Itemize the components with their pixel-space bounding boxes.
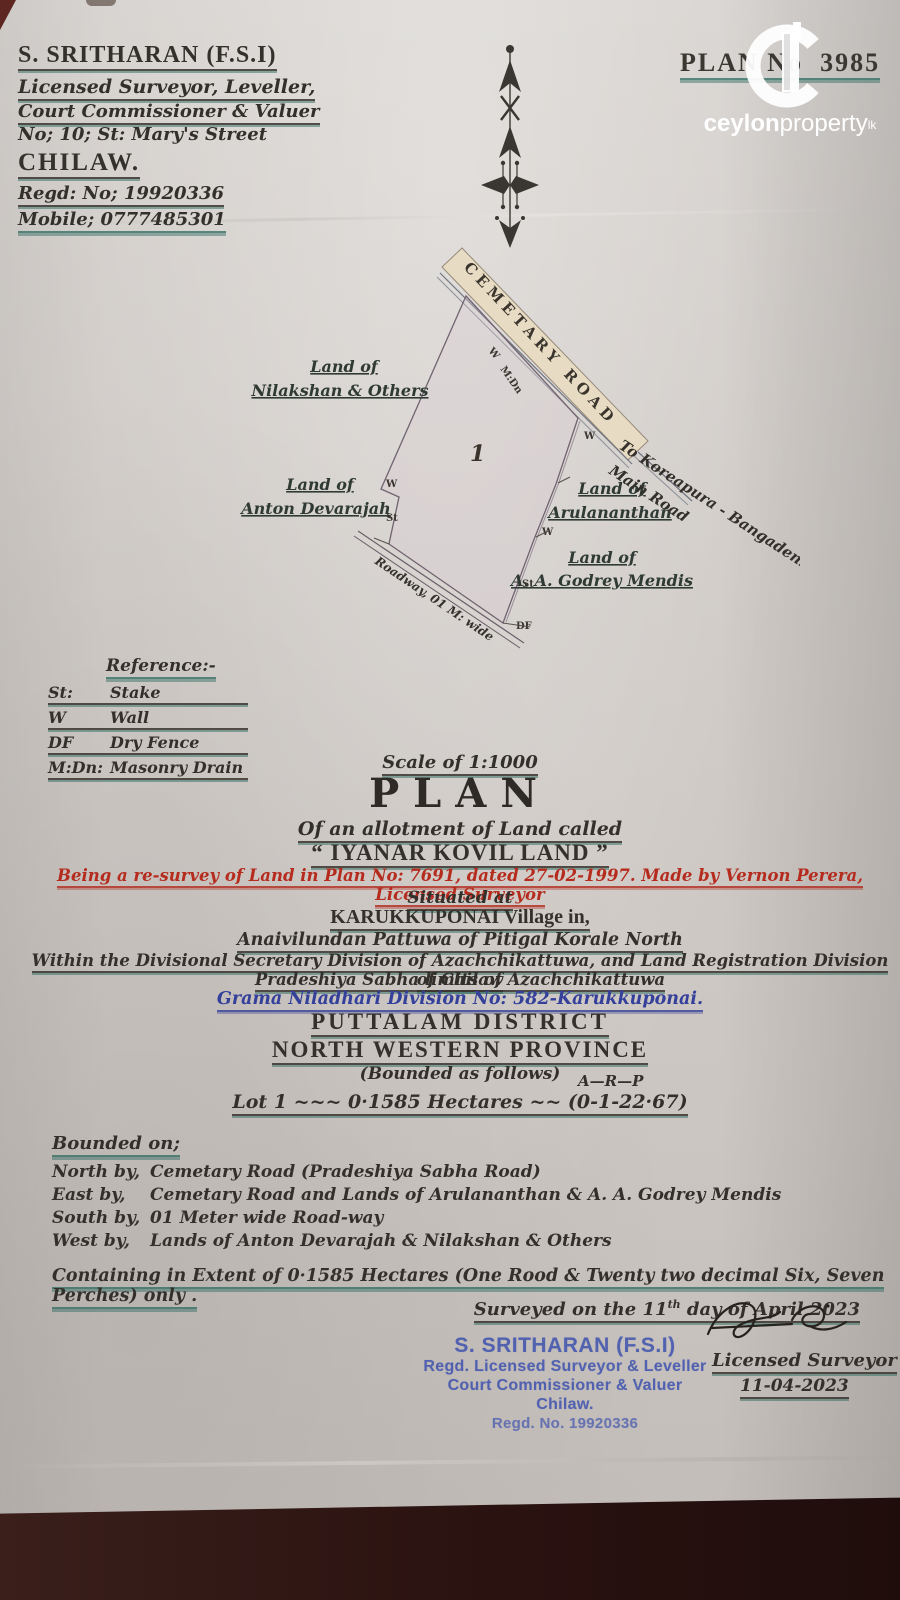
surveyor-address: No; 10; St: Mary's Street (18, 124, 267, 145)
stamp-line1: Regd. Licensed Surveyor & Leveller (410, 1357, 720, 1376)
signature-icon (700, 1292, 860, 1350)
scanned-survey-plan: S. SRITHARAN (F.S.I) Licensed Surveyor, … (0, 0, 900, 1600)
signature-date: 11-04-2023 (740, 1376, 849, 1399)
surveyor-stamp: S. SRITHARAN (F.S.I) Regd. Licensed Surv… (410, 1336, 720, 1433)
surveyor-commissioner-line: Court Commissioner & Valuer (18, 101, 320, 125)
watermark-logo: ceylonpropertylk (690, 18, 890, 138)
neighbor-w-line1: Land of (285, 475, 357, 494)
neighbor-se-line2: A. A. Godrey Mendis (509, 571, 693, 590)
province-line: NORTH WESTERN PROVINCE (272, 1037, 648, 1065)
bounded-side: West by, (52, 1231, 150, 1251)
mark-wall-notch: W (385, 479, 398, 490)
watermark-brand-bold: ceylon (704, 110, 780, 137)
mark-stake-left: St (386, 513, 398, 524)
district-line: PUTTALAM DISTRICT (311, 1009, 609, 1037)
mark-wall-corner: W (583, 431, 596, 442)
bounded-side: East by, (52, 1185, 150, 1205)
edge-mark (86, 0, 116, 6)
cadastral-drawing: CEMETARY ROAD Roadway, 01 M: wide 1 Land… (240, 245, 800, 675)
land-name: “ IYANAR KOVIL LAND ” (311, 840, 608, 868)
village-line: KARUKKUPONAI Village in, (330, 906, 589, 931)
ref-meaning: Stake (110, 683, 161, 702)
compass-rose-icon (477, 40, 543, 248)
ref-abbr: W (48, 708, 110, 727)
bounded-desc: Cemetary Road (Pradeshiya Sabha Road) (150, 1162, 541, 1182)
bounded-desc: Cemetary Road and Lands of Arulananthan … (150, 1185, 781, 1205)
stamp-line4: Regd. No. 19920336 (410, 1414, 720, 1433)
stamp-line2: Court Commissioner & Valuer (410, 1376, 720, 1395)
bounded-side: North by, (52, 1162, 150, 1182)
surveyor-mobile: Mobile; 0777485301 (18, 209, 226, 233)
surveyor-city: CHILAW. (18, 149, 140, 179)
neighbor-nw-line1: Land of (309, 357, 381, 376)
ref-meaning: Wall (110, 708, 149, 727)
ref-abbr: St: (48, 683, 110, 702)
watermark-building-icon (735, 18, 845, 110)
references-title: Reference:- (106, 656, 216, 679)
arp-header: A—R—P (578, 1072, 643, 1090)
bounded-row: South by,01 Meter wide Road-way (52, 1208, 383, 1228)
neighbor-w-line2: Anton Devarajah (240, 499, 391, 518)
watermark-tld: lk (868, 118, 877, 132)
surveyor-card: S. SRITHARAN (F.S.I) Licensed Surveyor, … (18, 42, 320, 230)
lot-number: 1 (470, 441, 485, 467)
bounded-row: East by,Cemetary Road and Lands of Arula… (52, 1185, 781, 1205)
watermark-brand-light: property (780, 110, 868, 137)
bounded-heading: Bounded on; (52, 1133, 180, 1157)
bounded-note: (Bounded as follows) (20, 1064, 900, 1084)
corner-shadow (0, 0, 16, 30)
bounded-desc: Lands of Anton Devarajah & Nilakshan & O… (150, 1231, 612, 1251)
mark-wall-right: W (541, 527, 554, 538)
lot-extent-line: Lot 1 ~~~ 0·1585 Hectares ~~ (0-1-22·67) (232, 1091, 687, 1116)
bounded-row: North by,Cemetary Road (Pradeshiya Sabha… (52, 1162, 541, 1182)
plan-title: PLAN (20, 770, 900, 817)
stamp-name: S. SRITHARAN (F.S.I) (410, 1336, 720, 1355)
pattuwa-line: Anaivilundan Pattuwa of Pitigal Korale N… (237, 930, 683, 953)
bounded-desc: 01 Meter wide Road-way (150, 1208, 383, 1228)
stamp-line3: Chilaw. (410, 1395, 720, 1414)
bounded-row: West by,Lands of Anton Devarajah & Nilak… (52, 1231, 612, 1251)
ref-meaning: Dry Fence (110, 733, 199, 752)
ref-abbr: DF (48, 733, 110, 752)
surveyor-regd-no: Regd: No; 19920336 (18, 183, 224, 207)
neighbor-nw-line2: Nilakshan & Others (250, 381, 428, 400)
surveyor-name: S. SRITHARAN (F.S.I) (18, 42, 277, 71)
neighbor-se-line1: Land of (567, 548, 639, 567)
mark-stake-right: St (522, 579, 534, 590)
bounded-side: South by, (52, 1208, 150, 1228)
signature-title: Licensed Surveyor (712, 1350, 897, 1374)
surveyor-title-line: Licensed Surveyor, Leveller, (18, 76, 315, 101)
